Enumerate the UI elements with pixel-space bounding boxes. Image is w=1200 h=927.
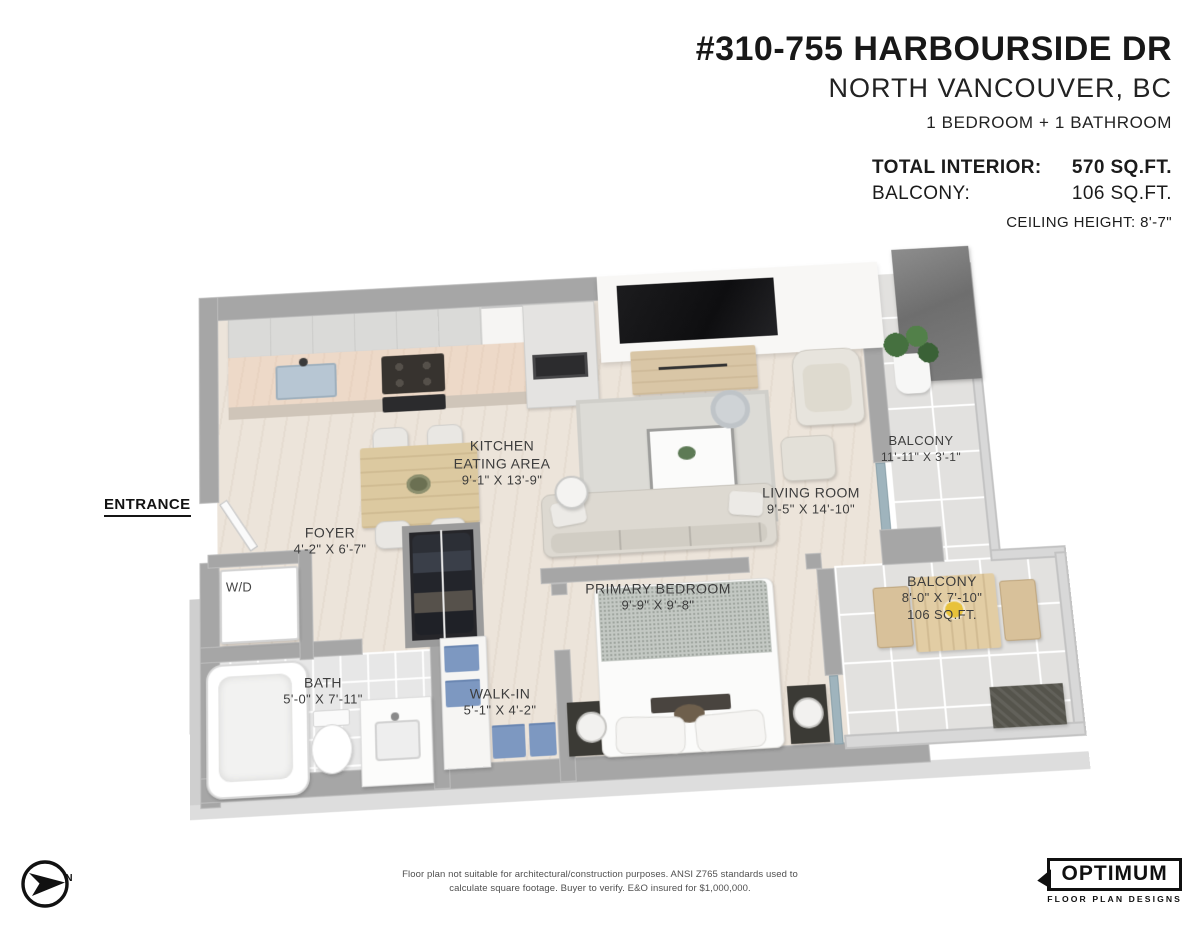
bed-bath-configuration: 1 BEDROOM + 1 BATHROOM: [696, 113, 1172, 133]
accent-chair-cushion: [802, 363, 853, 413]
door-mat: [989, 683, 1067, 728]
logo-name: OPTIMUM: [1059, 862, 1170, 886]
bed-pillow: [694, 708, 768, 753]
bed-pillow: [616, 717, 686, 755]
linen-stack-blue: [445, 679, 481, 708]
logo-pennant-icon: [1037, 869, 1051, 889]
total-interior-value: 570 SQ.FT.: [1072, 157, 1172, 179]
washer-dryer-unit: [220, 566, 300, 645]
floor-plan-render: [189, 237, 1087, 824]
sofa-pillow: [728, 491, 763, 517]
media-console: [630, 345, 758, 395]
total-interior-label: TOTAL INTERIOR:: [872, 157, 1042, 179]
total-interior-row: TOTAL INTERIOR: 570 SQ.FT.: [872, 157, 1172, 179]
balcony-area-value: 106 SQ.FT.: [1072, 183, 1172, 205]
optimum-logo: OPTIMUM FLOOR PLAN DESIGNS: [1047, 858, 1182, 904]
linen-stack-blue: [444, 644, 480, 672]
coffee-table: [647, 424, 738, 493]
floor-plan-page: { "header": { "address_line1": "#310-755…: [0, 0, 1200, 927]
area-stats: TOTAL INTERIOR: 570 SQ.FT. BALCONY: 106 …: [872, 157, 1172, 231]
balcony-area-row: BALCONY: 106 SQ.FT.: [872, 183, 1172, 205]
compass-north-letter: N: [65, 872, 73, 884]
ottoman: [780, 434, 837, 481]
cooktop: [381, 353, 445, 394]
disclaimer-line2: calculate square footage. Buyer to verif…: [402, 882, 798, 896]
header: #310-755 HARBOURSIDE DR NORTH VANCOUVER,…: [696, 30, 1172, 231]
address-line2: NORTH VANCOUVER, BC: [696, 73, 1172, 104]
address-line1: #310-755 HARBOURSIDE DR: [696, 30, 1172, 69]
wall-tv: [617, 278, 778, 344]
wd-closet-right-wall: [298, 549, 314, 660]
bed-blanket: [598, 580, 772, 662]
kitchen-sink: [275, 363, 337, 400]
disclaimer-line1: Floor plan not suitable for architectura…: [402, 868, 798, 882]
microwave: [532, 352, 588, 380]
balcony-plant: [873, 318, 948, 373]
vanity-sink: [375, 719, 421, 761]
entrance-label: ENTRANCE: [104, 496, 191, 517]
linen-stack-blue: [492, 724, 526, 759]
disclaimer: Floor plan not suitable for architectura…: [402, 868, 798, 896]
outdoor-chair: [872, 586, 914, 648]
logo-box: OPTIMUM: [1047, 858, 1182, 891]
walkin-right-wall-stub: [551, 583, 568, 596]
ceiling-height: CEILING HEIGHT: 8'-7": [872, 214, 1172, 231]
right-wall-step: [879, 526, 944, 565]
bedroom-top-wall-stub: [805, 553, 822, 570]
outdoor-chair: [999, 579, 1042, 641]
left-wall-upper: [199, 297, 220, 504]
bathtub-basin: [218, 673, 293, 783]
linen-stack-blue: [529, 722, 557, 757]
logo-subtitle: FLOOR PLAN DESIGNS: [1047, 894, 1182, 904]
balcony-area-label: BALCONY:: [872, 183, 970, 205]
north-compass-icon: N: [18, 854, 76, 919]
